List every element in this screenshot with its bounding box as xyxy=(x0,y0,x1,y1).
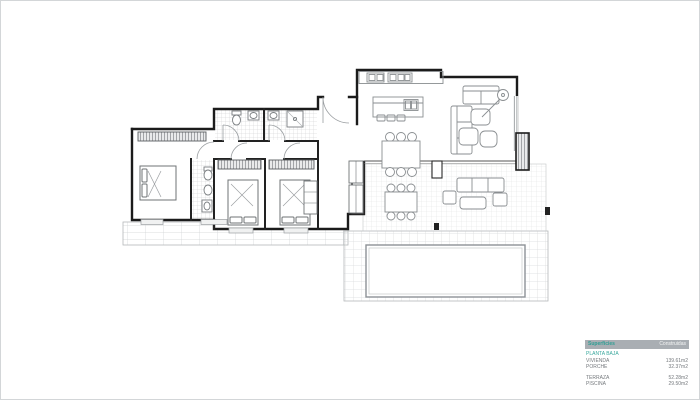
outdoor-dining-set xyxy=(385,184,417,220)
floor-plan-page: Superficies Construidas PLANTA BAJA VIVI… xyxy=(0,0,700,400)
outdoor-chair xyxy=(493,193,507,206)
outdoor-chair xyxy=(443,191,456,204)
row-value: 29.50m2 xyxy=(669,382,688,388)
row-value: 32.37m2 xyxy=(669,365,688,371)
row-label: PORCHE xyxy=(586,365,607,371)
porch-pier xyxy=(432,161,442,178)
master-bed xyxy=(140,166,176,200)
dining-table xyxy=(382,141,420,168)
kitchen-island xyxy=(373,97,423,121)
areas-legend: Superficies Construidas PLANTA BAJA VIVI… xyxy=(585,340,689,388)
row-label: PISCINA xyxy=(586,382,606,388)
dining-set xyxy=(382,133,420,177)
master-wardrobe xyxy=(138,132,206,141)
armchair xyxy=(459,128,478,145)
bedroom3-wardrobe xyxy=(269,160,314,169)
coffee-table xyxy=(480,131,497,147)
outdoor-coffee-table xyxy=(460,197,486,209)
legend-header-superficies: Superficies xyxy=(588,342,615,348)
fireplace xyxy=(516,133,529,170)
legend-row-piscina: PISCINA 29.50m2 xyxy=(585,382,689,388)
swimming-pool xyxy=(366,245,525,297)
bedroom2-bed xyxy=(228,180,258,225)
loveseat xyxy=(463,86,499,104)
bedroom2-wardrobe xyxy=(218,160,261,169)
legend-header: Superficies Construidas xyxy=(585,340,689,349)
legend-header-construidas: Construidas xyxy=(659,342,686,348)
legend-section-title: PLANTA BAJA xyxy=(586,352,689,358)
legend-row-porche: PORCHE 32.37m2 xyxy=(585,365,689,371)
